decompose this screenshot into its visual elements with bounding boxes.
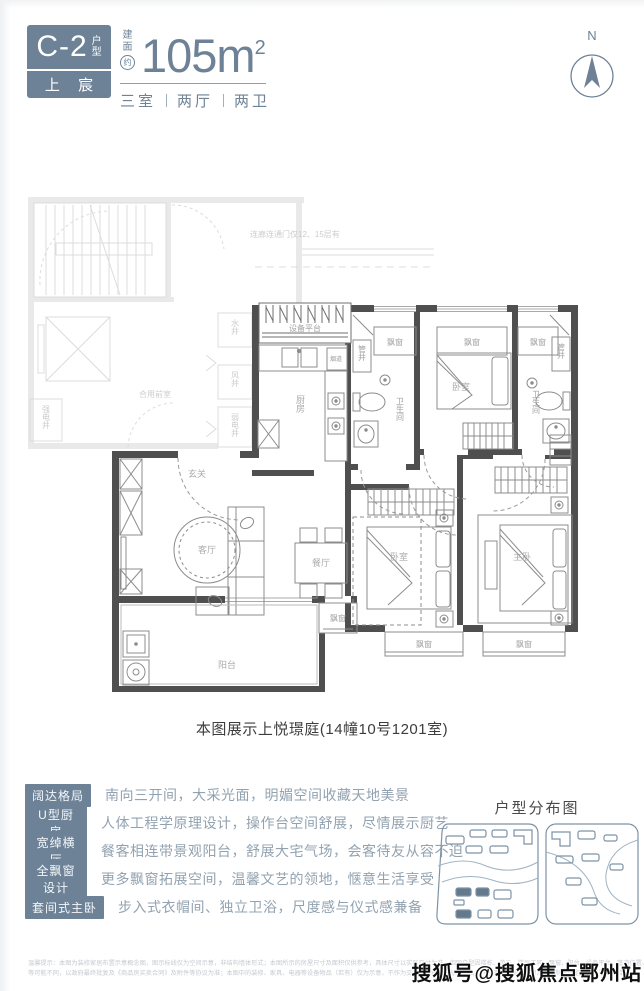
bathroom-1 [353,315,390,447]
bath2-label: 卫生间 [532,390,541,415]
floorplan-page: C-2 户 型 上 宸 建 面 约 105m2 三室 两厅 两卫 N [0,0,644,991]
area-value: 105m2 [141,24,265,80]
bedroom-mid-label: 卧室 [390,551,408,562]
bay-label-4: 飘窗 [416,639,432,649]
bay-label-1: 飘窗 [387,337,403,347]
north-compass-icon: N [566,26,618,110]
feature-badge: 全飘窗设计 [25,859,87,899]
area-block: 建 面 约 105m2 三室 两厅 两卫 [120,24,270,111]
feature-desc: 步入式衣帽间、独立卫浴，尺度感与仪式感兼备 [118,897,423,917]
lobby-label: 合用前室 [139,389,171,399]
weak-elec-label: 弱电井 [231,413,240,438]
equipment-label: 设备平台 [289,323,321,333]
balcony [121,605,317,685]
corridor-note: 连廊连通门仅12、15层有 [250,229,340,239]
unit-code: C-2 [36,32,87,62]
living-label: 客厅 [198,544,216,555]
balcony-label: 阳台 [218,659,236,670]
dining-label: 餐厅 [312,557,330,568]
master-label: 主卧 [513,551,531,562]
living-room [120,459,264,615]
bedroom-top-label: 卧室 [452,381,470,392]
pipe-shaft-label-1: 管井 [358,344,367,362]
feature-desc: 南向三开间，大采光面，明媚空间收藏天地美景 [105,785,410,805]
page-edge-shading-top [0,0,644,8]
bay-label-3: 飘窗 [530,337,546,347]
feature-row: 全飘窗设计 更多飘窗拓展空间，温馨文艺的领地，惬意生活享受 [25,865,425,893]
distribution-map [434,822,640,932]
unit-type-label: 户 型 [92,36,102,58]
feature-badge: 套间式主卧 [25,896,104,919]
feature-desc: 餐客相连带景观阳台，舒展大宅气场，会客待友从容不迫 [101,841,464,861]
area-divider-line [120,83,266,84]
strong-elec-label: 强电井 [42,405,51,430]
entry-label: 玄关 [188,468,206,479]
area-prefix: 建 面 约 [120,30,135,70]
air-shaft-label: 风井 [231,371,240,388]
summary-separator [223,94,224,107]
rooms-summary: 三室 两厅 两卫 [120,90,270,111]
bay-label-5: 飘窗 [516,639,532,649]
water-shaft-label: 水井 [231,318,240,336]
watermark: 搜狐号@搜狐焦点鄂州站 [411,957,642,986]
kitchen-label: 厨房 [295,395,305,414]
feature-desc: 更多飘窗拓展空间，温馨文艺的领地，惬意生活享受 [101,869,435,889]
flue-label: 烟道 [330,355,342,363]
floor-plan: 连廊连通门仅12、15层有 合用前室 水井 风井 弱电井 强电井 [0,185,644,715]
plan-caption: 本图展示上悦璟庭(14幢10号1201室) [0,718,644,739]
summary-separator [166,94,167,107]
unit-badge: C-2 户 型 上 宸 [27,25,111,98]
feature-row: 套间式主卧 步入式衣帽间、独立卫浴，尺度感与仪式感兼备 [25,893,425,921]
bay-label-6: 飘窗 [330,613,346,623]
bath1-label: 卫生间 [396,397,405,422]
feature-list: 阔达格局 南向三开间，大采光面，明媚空间收藏天地美景 U型厨房 人体工程学原理设… [25,781,425,921]
brand-name: 上 宸 [27,71,111,97]
bedroom-top [437,353,513,449]
north-label: N [587,28,596,43]
bay-label-2: 飘窗 [464,337,480,347]
bathroom-2 [527,315,570,443]
master-bedroom [478,435,572,625]
room-labels: 玄关 客厅 餐厅 厨房 阳台 卧室 卧室 主卧 卫生间 卫生间 管井 管井 烟道… [188,323,566,670]
approx-circle: 约 [120,55,135,70]
pipe-shaft-label-2: 管井 [557,342,566,360]
equipment-platform [259,303,351,343]
distribution-title: 户型分布图 [434,797,640,818]
feature-desc: 人体工程学原理设计，操作台空间舒展，尽情展示厨艺 [101,813,449,833]
area-exponent: 2 [255,37,265,59]
